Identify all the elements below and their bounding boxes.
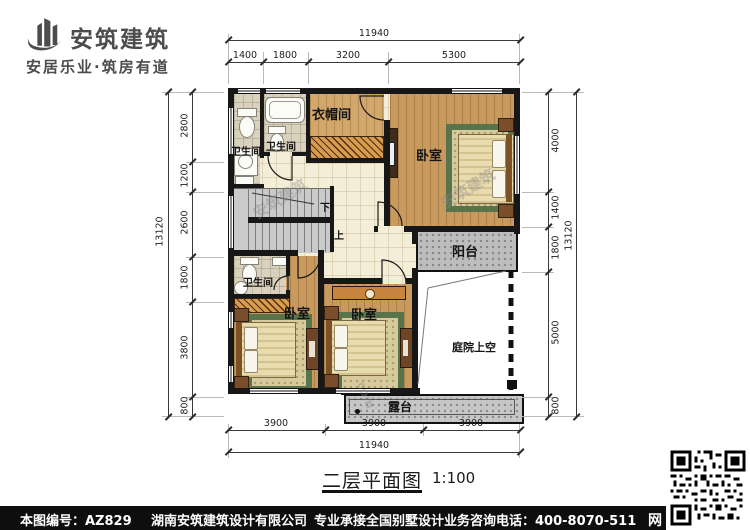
window [238,88,260,94]
dim-line-bottom-total [228,452,520,453]
title-underline [322,490,422,493]
dim-left-seg-5: 3800 [180,328,191,368]
dim-top-seg-3: 3200 [328,50,368,61]
wall [330,186,334,252]
company-name: 安筑建筑 [70,20,170,54]
wall [318,250,324,388]
extension-line [522,192,554,193]
dim-left-seg-2: 1200 [180,156,191,196]
dim-top-seg-2: 1800 [265,50,305,61]
toilet-bowl [239,116,255,138]
bedroom-top-headboard [506,134,512,202]
dim-left-total: 13120 [155,212,166,252]
dim-right-seg-1: 4000 [551,121,562,161]
dim-line-right-total [576,92,577,417]
stair-flight-lower [248,223,332,252]
terrace-column-dot [355,409,360,414]
bathtub [265,97,305,123]
drawing-scale: 1:100 [432,469,475,487]
room-label-bedroom-bl: 卧室 [284,303,310,322]
dim-top-total: 11940 [344,28,404,39]
dim-line-right-seg [548,92,549,417]
extension-line [522,227,554,228]
stair-label-up: 上 [334,227,344,242]
wall [384,120,390,226]
dim-right-seg-5: 800 [551,386,562,426]
room-label-balcony: 阳台 [452,241,478,260]
extension-line [308,52,309,84]
room-label-bath2: 卫生间 [266,138,296,153]
dim-left-seg-6: 800 [180,386,191,426]
dim-left-seg-1: 2800 [180,106,191,146]
wall [306,158,390,163]
dim-line-left-total [168,92,169,417]
dim-right-seg-3: 1800 [551,228,562,268]
dim-tick [517,426,524,433]
footer-bar: 本图编号：AZ829 湖南安筑建筑设计有限公司 专业承接全国别墅设计业务 咨询电… [0,506,750,530]
stair-label-down: 下 [320,199,330,214]
wall [306,94,310,158]
dim-bottom-seg-1: 3900 [256,418,296,429]
dim-tick [517,58,524,65]
company-name-footer: 湖南安筑建筑设计有限公司 [151,510,307,529]
nightstand [324,374,339,388]
dim-bottom-total: 11940 [344,440,404,451]
pillow [334,325,348,348]
dim-tick [517,448,524,455]
company-logo-icon [22,12,68,58]
plan-number: 本图编号：AZ829 [20,510,132,529]
wall [374,226,378,232]
web-char: 网 [648,510,662,530]
window [266,88,300,94]
wall [228,184,264,188]
phone-text: 咨询电话：400-8070-511 [470,510,636,529]
window [452,88,502,94]
dim-left-seg-3: 2600 [180,203,191,243]
room-label-bath3: 卫生间 [243,274,273,289]
dim-left-seg-4: 1800 [180,258,191,298]
drawing-title: 二层平面图 [322,466,422,493]
room-label-bath1: 卫生间 [231,143,261,158]
bedroom-bm-console [332,286,406,300]
dresser-front [403,340,408,356]
dim-line-bottom-seg [228,430,520,431]
pillow [492,140,506,168]
window [228,366,234,382]
dim-bottom-seg-3: 3900 [451,418,491,429]
bedroom-bm-headboard [326,320,332,374]
qr-pattern [666,446,750,530]
column-block [507,380,517,389]
dim-line-top-seg [228,62,520,63]
window [514,136,520,194]
pillow [244,350,258,373]
qr-code [666,446,750,530]
dim-tick [517,36,524,43]
service-text: 专业承接全国别墅设计业务 [314,510,470,529]
nightstand [498,118,514,132]
page: 安筑建筑 安居乐业·筑房有道 [0,0,750,530]
window [228,312,234,328]
nightstand [498,204,514,218]
wall [286,290,290,298]
wall [234,294,290,298]
dim-top-seg-1: 1400 [225,50,265,61]
extension-line [522,397,554,398]
nightstand [324,306,339,320]
wall [412,232,418,244]
wall [404,226,518,232]
extension-line [388,52,389,84]
extension-line [522,272,554,273]
dim-line-top-total [228,40,520,41]
wall [412,268,418,388]
room-label-cloakroom: 衣帽间 [312,104,351,123]
room-label-terrace: 露台 [388,398,412,415]
console-knob [365,289,375,299]
room-label-void: 庭院上空 [452,339,496,355]
dim-right-seg-2: 1400 [551,188,562,228]
wall [324,278,382,284]
wall [286,256,290,276]
nightstand [234,308,249,322]
window [228,196,234,248]
bathtub-inner [269,101,301,119]
courtyard-void [416,268,514,392]
pillow [244,327,258,350]
dim-top-seg-4: 5300 [434,50,474,61]
cloakroom-wardrobe [310,136,384,160]
room-label-bedroom-top: 卧室 [416,145,442,164]
dim-right-total: 13120 [564,216,575,256]
window [250,388,298,394]
dim-bottom-seg-2: 3900 [354,418,394,429]
company-slogan: 安居乐业·筑房有道 [26,56,170,77]
pillow [334,348,348,371]
dim-right-seg-4: 5000 [551,313,562,353]
room-label-bedroom-bm: 卧室 [351,304,377,323]
dresser-front [309,341,315,357]
bedroom-bl-headboard [236,322,242,376]
